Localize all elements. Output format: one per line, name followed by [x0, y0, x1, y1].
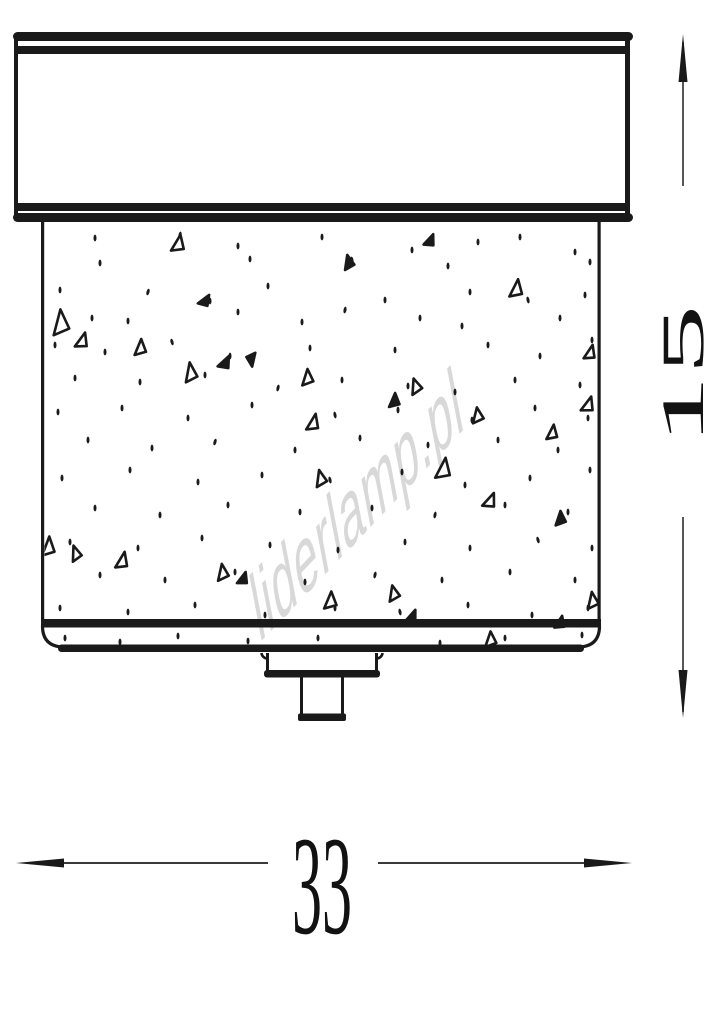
canopy-bottom-cap: [13, 213, 633, 222]
body-left-edge: [41, 221, 44, 627]
mounting-stub: [298, 677, 346, 721]
body-bottom-rim: [58, 645, 584, 653]
canopy-left-edge: [14, 38, 18, 218]
arrow-up-icon: [679, 34, 688, 82]
height-dimension-value: 15: [653, 305, 713, 446]
canopy-top-cap: [13, 32, 633, 41]
arrow-right-icon: [584, 859, 632, 868]
canopy: [13, 32, 633, 222]
arrow-down-icon: [679, 670, 688, 718]
arrow-left-icon: [16, 859, 64, 868]
canopy-right-edge: [625, 38, 630, 218]
stub-left-side: [300, 677, 303, 717]
canopy-top-bar: [18, 46, 629, 54]
speckle-texture: [42, 231, 599, 647]
canopy-bottom-bar: [18, 203, 629, 211]
width-dimension-value: 33: [292, 816, 352, 957]
stub-bottom-bar: [298, 714, 346, 722]
collar-bottom-bar: [264, 670, 380, 678]
mounting-collar: [262, 653, 383, 678]
body-right-edge: [598, 221, 601, 627]
stub-right-side: [341, 677, 344, 717]
body-lower-band-line: [41, 619, 601, 628]
lamp-dimensional-drawing: [0, 0, 724, 1024]
body-rim-left-curve: [43, 626, 63, 647]
technical-drawing-page: liderlamp.pl: [0, 0, 724, 1024]
